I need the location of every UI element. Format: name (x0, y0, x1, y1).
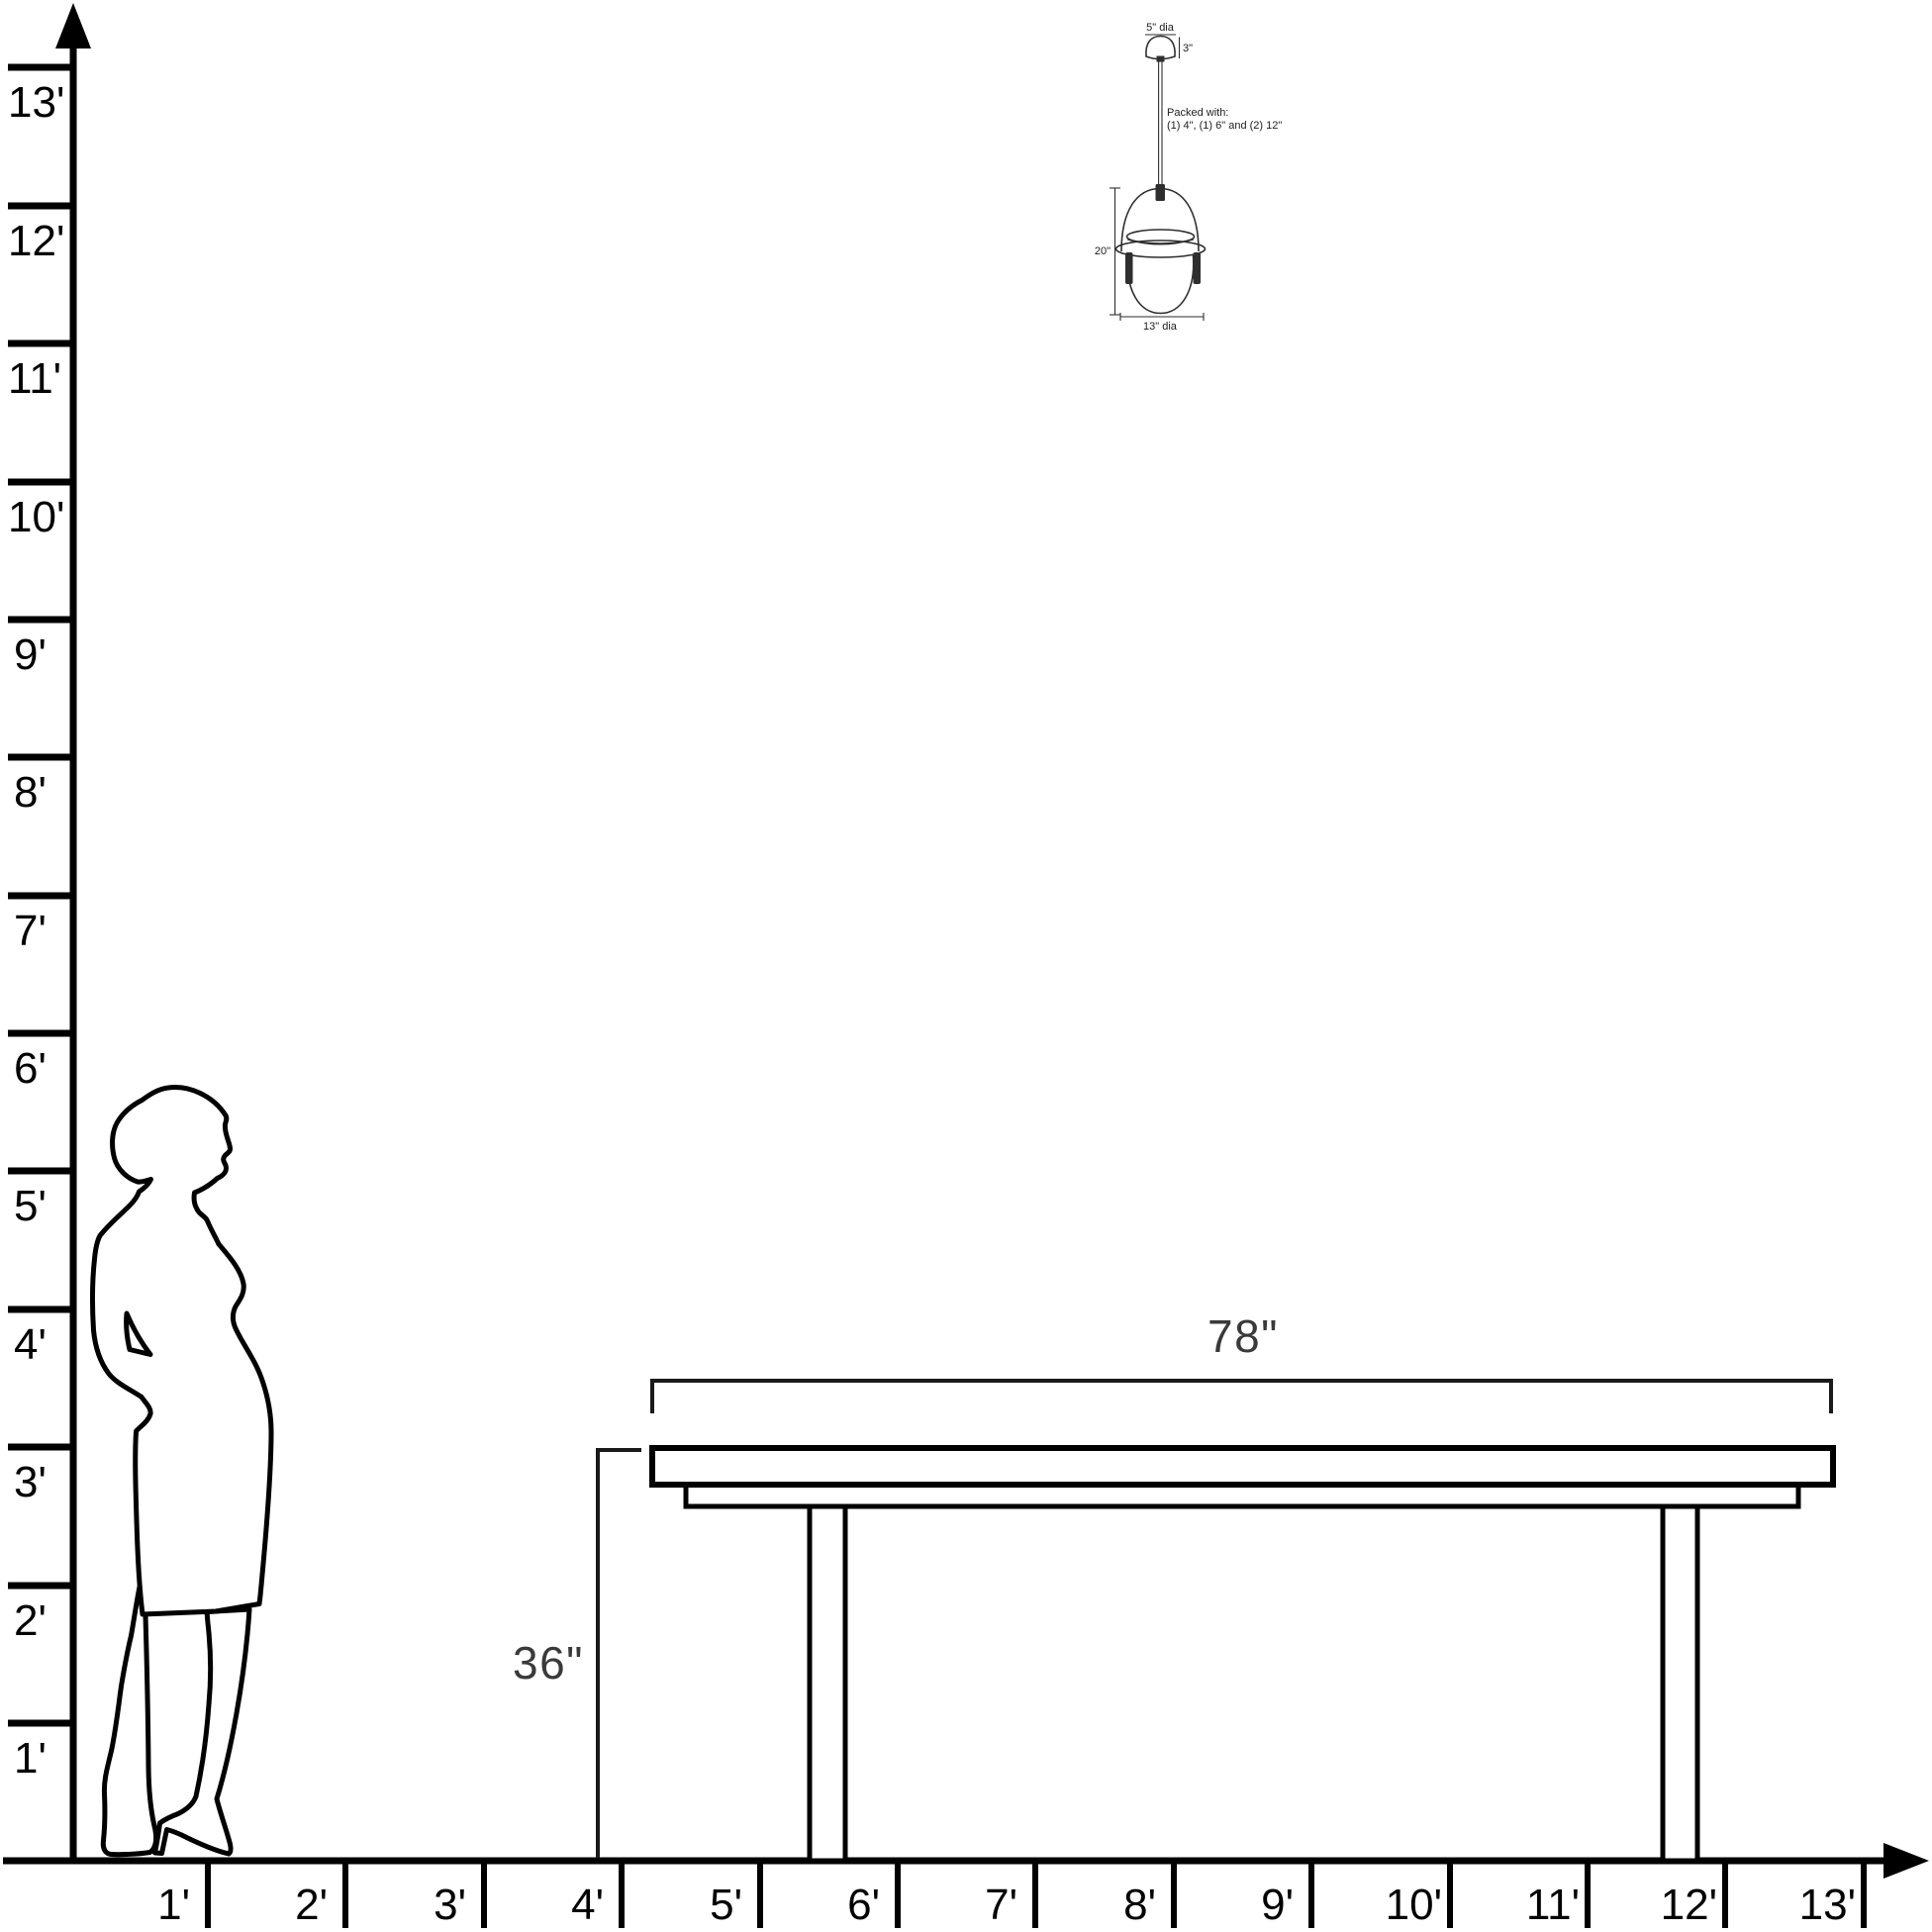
horizontal-axis-label: 3' (434, 1881, 466, 1929)
pendant-canopy (1146, 37, 1175, 59)
woman-back-leg (103, 1584, 155, 1855)
pendant-packing-note-line1: Packed with: (1167, 107, 1228, 119)
axis-arrow-up-icon (55, 3, 91, 48)
vertical-axis-label: 7' (14, 907, 47, 955)
table-width-dimension: 78" (652, 1310, 1831, 1413)
pendant-glass-shade (1127, 255, 1194, 314)
pendant-light-drawing: 5" dia 3" Packed with: (1) 4", (1) 6" an… (1095, 22, 1282, 333)
woman-body (92, 1088, 271, 1614)
axis-arrow-right-icon (1884, 1843, 1929, 1879)
pendant-left-clip (1125, 252, 1133, 284)
vertical-axis-label: 8' (14, 768, 47, 817)
vertical-ruler: 1' 2' 3' 4' 5' 6' 7' 8' 9' 10' 11' 12' 1… (8, 3, 91, 1864)
table-apron (686, 1485, 1798, 1506)
horizontal-axis-label: 5' (710, 1881, 742, 1929)
table-width-label: 78" (1207, 1310, 1279, 1362)
vertical-axis-label: 11' (8, 354, 61, 403)
table-height-dimension: 36" (513, 1450, 641, 1858)
vertical-axis-label: 13' (8, 78, 64, 127)
horizontal-axis-label: 2' (295, 1881, 328, 1929)
vertical-axis-label: 1' (14, 1734, 47, 1783)
table-top (652, 1448, 1833, 1485)
horizontal-axis-label: 12' (1661, 1881, 1717, 1929)
pendant-right-clip (1194, 252, 1202, 284)
pendant-packing-note-line2: (1) 4", (1) 6" and (2) 12" (1167, 120, 1282, 132)
vertical-axis-label: 3' (14, 1458, 47, 1506)
horizontal-axis-label: 8' (1123, 1881, 1156, 1929)
horizontal-axis-label: 11' (1526, 1881, 1580, 1929)
table-height-label: 36" (513, 1637, 584, 1689)
dining-table-drawing (652, 1448, 1833, 1861)
vertical-axis-label: 9' (14, 630, 47, 679)
vertical-axis-label: 2' (14, 1596, 47, 1645)
height-dimension-line (598, 1450, 641, 1858)
horizontal-axis-label: 1' (157, 1881, 190, 1929)
pendant-body-height-label: 20" (1095, 245, 1111, 257)
vertical-axis-label: 12' (8, 217, 64, 265)
woman-silhouette (92, 1088, 271, 1855)
horizontal-axis-label: 9' (1261, 1881, 1294, 1929)
horizontal-axis-label: 7' (985, 1881, 1017, 1929)
woman-front-leg (155, 1609, 250, 1854)
table-right-leg (1663, 1506, 1697, 1861)
vertical-axis-label: 10' (8, 493, 64, 541)
pendant-canopy-height-label: 3" (1183, 43, 1193, 54)
scale-diagram-canvas: 1' 2' 3' 4' 5' 6' 7' 8' 9' 10' 11' 12' 1… (0, 0, 1932, 1932)
vertical-axis-label: 6' (14, 1044, 47, 1093)
rod-sleeve (1156, 184, 1166, 201)
vertical-axis-label: 4' (14, 1320, 47, 1369)
pendant-body-diameter-label: 13" dia (1143, 321, 1178, 333)
pendant-canopy-diameter-label: 5" dia (1146, 22, 1175, 34)
horizontal-axis-label: 10' (1386, 1881, 1442, 1929)
vertical-axis-label: 5' (14, 1182, 47, 1230)
horizontal-axis-label: 4' (571, 1881, 604, 1929)
table-left-leg (810, 1506, 845, 1861)
horizontal-axis-label: 6' (847, 1881, 880, 1929)
horizontal-ruler: 1' 2' 3' 4' 5' 6' 7' 8' 9' 10' 11' 12' 1… (3, 1843, 1929, 1929)
horizontal-axis-label: 13' (1799, 1881, 1856, 1929)
width-dimension-bracket (652, 1381, 1831, 1413)
pendant-rod (1159, 61, 1162, 186)
